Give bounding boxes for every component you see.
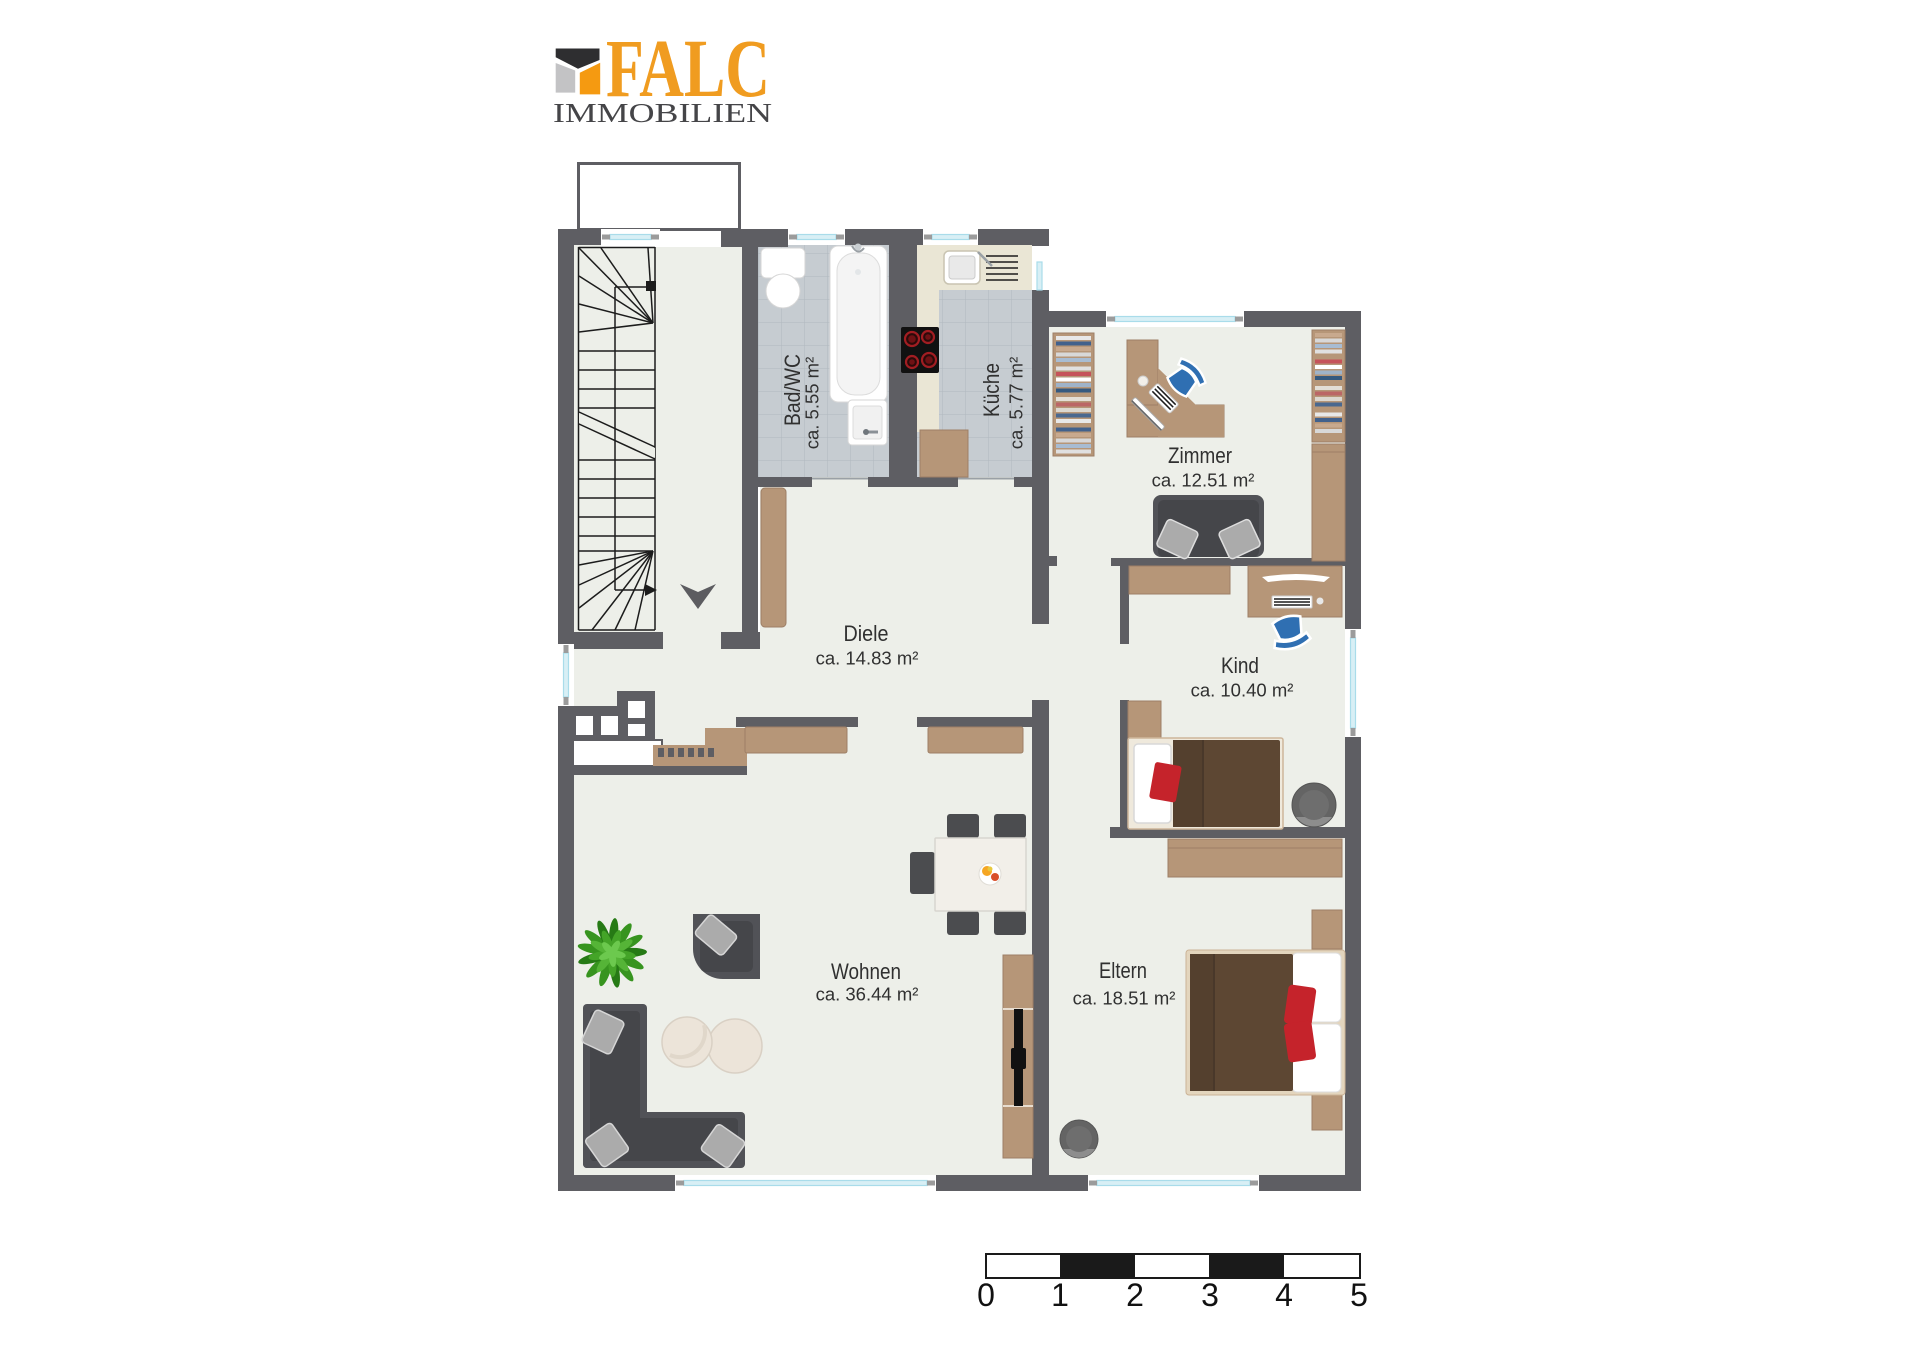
svg-text:ca. 36.44 m²: ca. 36.44 m² xyxy=(816,984,919,1005)
svg-text:3: 3 xyxy=(1201,1277,1219,1313)
svg-text:Zimmer: Zimmer xyxy=(1168,443,1232,468)
svg-text:Diele: Diele xyxy=(844,621,889,646)
svg-text:1: 1 xyxy=(1051,1277,1069,1313)
svg-text:ca. 10.40 m²: ca. 10.40 m² xyxy=(1191,680,1294,701)
svg-text:ca. 18.51 m²: ca. 18.51 m² xyxy=(1073,988,1176,1009)
svg-text:Wohnen: Wohnen xyxy=(831,959,901,984)
svg-text:ca. 12.51 m²: ca. 12.51 m² xyxy=(1152,470,1255,491)
svg-text:Küche: Küche xyxy=(979,363,1004,417)
svg-text:2: 2 xyxy=(1126,1277,1144,1313)
svg-text:0: 0 xyxy=(977,1277,995,1313)
svg-text:Kind: Kind xyxy=(1221,653,1259,678)
svg-text:5: 5 xyxy=(1350,1277,1368,1313)
svg-text:Eltern: Eltern xyxy=(1099,958,1147,983)
svg-text:ca. 5.77 m²: ca. 5.77 m² xyxy=(1006,357,1027,450)
svg-text:ca. 5.55 m²: ca. 5.55 m² xyxy=(802,357,823,450)
svg-text:ca. 14.83 m²: ca. 14.83 m² xyxy=(816,648,919,669)
svg-text:4: 4 xyxy=(1275,1277,1293,1313)
svg-text:IMMOBILIEN: IMMOBILIEN xyxy=(553,98,772,128)
